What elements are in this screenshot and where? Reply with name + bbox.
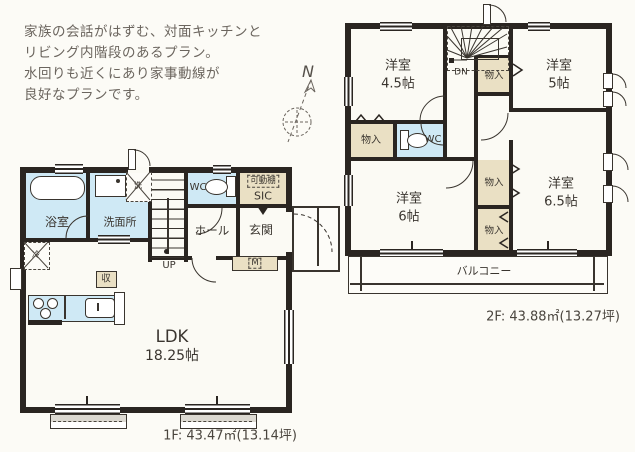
floor-plan-canvas: 家族の会話がはずむ、対面キッチンと リビング内階段のあるプラン。 水回りも近くに…	[0, 0, 635, 452]
placeholder-x-marks	[0, 0, 635, 452]
